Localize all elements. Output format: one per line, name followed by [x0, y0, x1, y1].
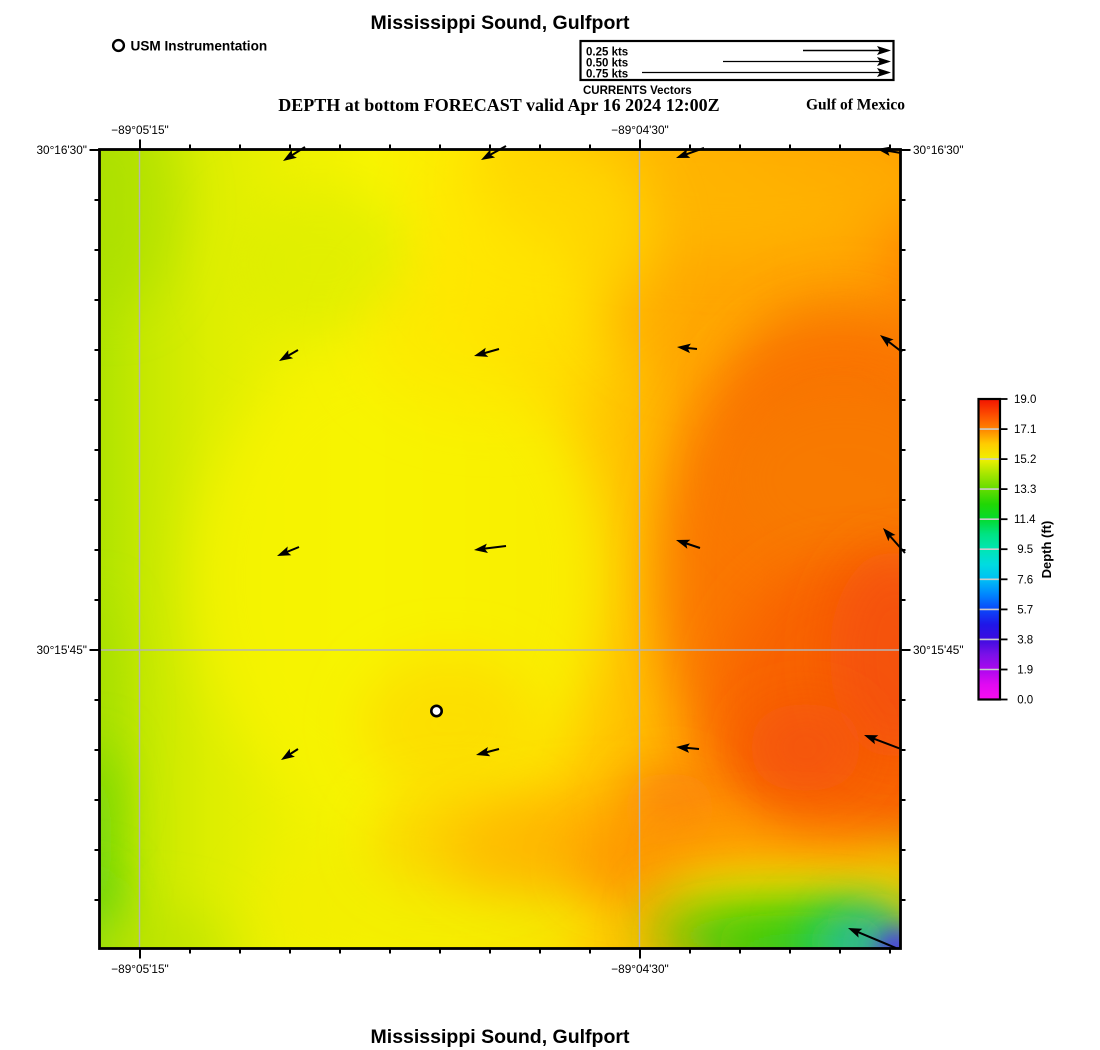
svg-text:0.75 kts: 0.75 kts: [586, 69, 628, 81]
svg-text:−89°05'15": −89°05'15": [111, 123, 168, 137]
svg-text:15.2: 15.2: [1014, 454, 1036, 466]
svg-text:DEPTH at bottom FORECAST valid: DEPTH at bottom FORECAST valid Apr 16 20…: [278, 95, 719, 115]
svg-text:30°16'30": 30°16'30": [36, 143, 87, 157]
svg-text:CURRENTS Vectors: CURRENTS Vectors: [583, 85, 692, 97]
svg-text:−89°04'30": −89°04'30": [611, 962, 668, 976]
svg-text:Mississippi Sound, Gulfport: Mississippi Sound, Gulfport: [371, 12, 630, 34]
svg-text:30°16'30": 30°16'30": [913, 143, 964, 157]
svg-text:9.5: 9.5: [1014, 544, 1033, 556]
svg-text:Gulf of Mexico: Gulf of Mexico: [806, 97, 905, 114]
svg-text:30°15'45": 30°15'45": [36, 643, 87, 657]
svg-text:5.7: 5.7: [1014, 604, 1033, 616]
svg-text:USM Instrumentation: USM Instrumentation: [131, 39, 268, 54]
svg-text:19.0: 19.0: [1014, 394, 1036, 406]
svg-text:Mississippi Sound, Gulfport: Mississippi Sound, Gulfport: [371, 1026, 630, 1048]
svg-text:Depth (ft): Depth (ft): [1039, 521, 1054, 579]
svg-text:30°15'45": 30°15'45": [913, 643, 964, 657]
svg-text:13.3: 13.3: [1014, 484, 1036, 496]
svg-text:3.8: 3.8: [1014, 634, 1033, 646]
svg-text:−89°04'30": −89°04'30": [611, 123, 668, 137]
svg-text:7.6: 7.6: [1014, 574, 1033, 586]
svg-text:0.0: 0.0: [1014, 695, 1033, 707]
svg-text:17.1: 17.1: [1014, 424, 1036, 436]
svg-text:1.9: 1.9: [1014, 665, 1033, 677]
svg-text:11.4: 11.4: [1014, 514, 1036, 526]
svg-text:−89°05'15": −89°05'15": [111, 962, 168, 976]
